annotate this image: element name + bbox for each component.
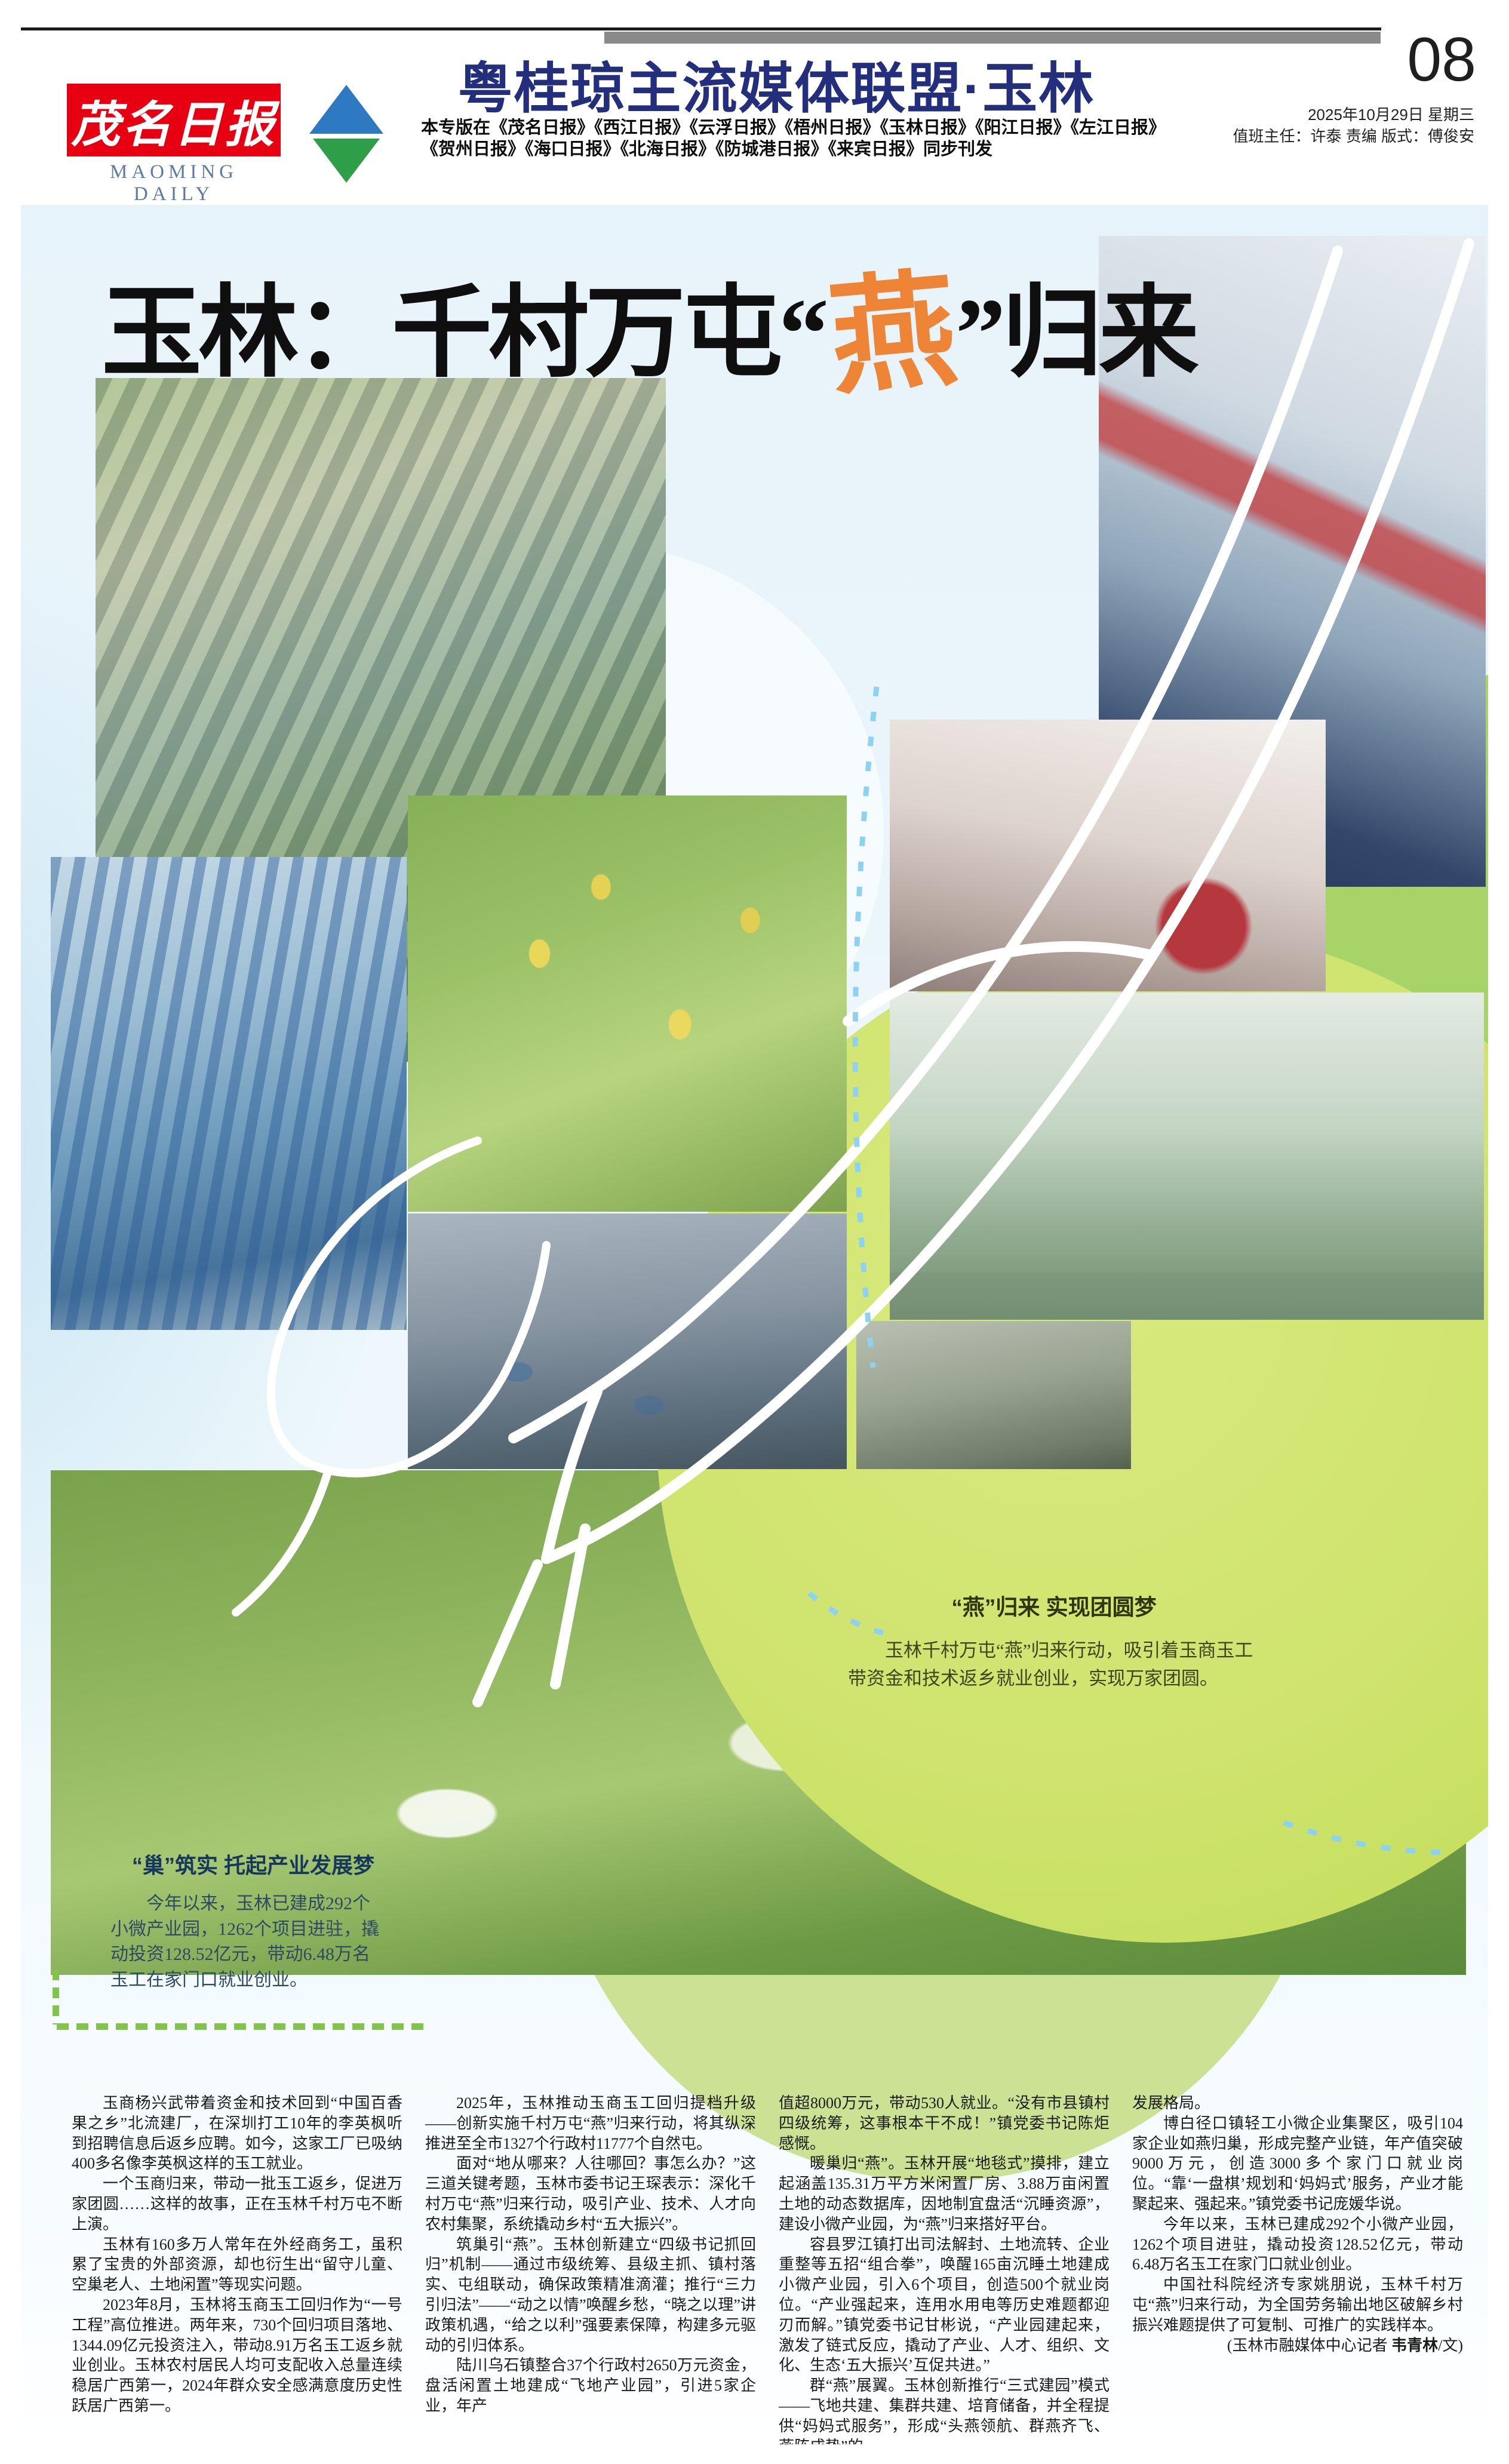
article-paragraph: 一个玉商归来，带动一批玉工返乡，促进万家团圆……这样的故事，正在玉林千村万屯不断… (72, 2174, 402, 2234)
article-column-2: 2025年，玉林推动玉商玉工回归提档升级——创新实施千村万屯“燕”归来行动，将其… (425, 2093, 756, 2444)
emblem-green-triangle-icon (313, 139, 380, 183)
headline: 玉林：千村万屯“燕”归来 (102, 262, 1105, 388)
page-title: 粤桂琼主流媒体联盟·玉林 (418, 44, 1135, 124)
byline-suffix: /文) (1438, 2337, 1463, 2354)
masthead-logo: 茂名日报 (67, 84, 281, 156)
article-paragraph: 2025年，玉林推动玉商玉工回归提档升级——创新实施千村万屯“燕”归来行动，将其… (425, 2093, 756, 2153)
byline: (玉林市融媒体中心记者 韦青林/文) (1132, 2336, 1463, 2356)
article-paragraph: 筑巢引“燕”。玉林创新建立“四级书记抓回归”机制——通过市级统筹、县级主抓、镇村… (425, 2235, 756, 2356)
emblem-blue-triangle-icon (309, 85, 383, 134)
green-dashed-line-horizontal (57, 2023, 427, 2030)
electronics-workshop-photo (890, 993, 1484, 1320)
masthead-logo-en: MAOMING DAILY (67, 161, 281, 205)
knitting-factory-photo (890, 720, 1326, 991)
date-line: 2025年10月29日 星期三 (1308, 103, 1474, 125)
couple-passionfruit-photo (408, 795, 847, 1212)
edition-note-line1: 本专版在《茂名日报》《西江日报》《云浮日报》《梧州日报》《玉林日报》《阳江日报》… (421, 117, 1269, 139)
article-paragraph: 发展格局。 (1132, 2093, 1463, 2113)
headline-suffix: ”归来 (955, 278, 1195, 389)
edition-note-line2: 《贺州日报》《海口日报》《北海日报》《防城港日报》《来宾日报》同步刊发 (421, 139, 1269, 160)
article-paragraph: 中国社科院经济专家姚朋说，玉林千村万屯“燕”归来行动，为全国劳务输出地区破解乡村… (1132, 2275, 1463, 2335)
article-column-4: 发展格局。 博白径口镇轻工小微企业集聚区，吸引104家企业如燕归巢，形成完整产业… (1132, 2093, 1463, 2444)
caption-swallow-title: “燕”归来 实现团圆梦 (848, 1589, 1260, 1621)
caption-nest-title: “巢”筑实 托起产业发展梦 (110, 1848, 385, 1879)
staff-line: 值班主任：许泰 责编 版式：傅俊安 (1233, 124, 1474, 146)
byline-prefix: (玉林市融媒体中心记者 (1227, 2337, 1391, 2354)
caption-swallow-body: 玉林千村万屯“燕”归来行动，吸引着玉商玉工带资金和技术返乡就业创业，实现万家团圆… (848, 1637, 1260, 1692)
caption-nest-building: “巢”筑实 托起产业发展梦 今年以来，玉林已建成292个小微产业园，1262个项… (110, 1848, 385, 1993)
header-gray-bar (604, 32, 1381, 44)
article-paragraph: 博白径口镇轻工小微企业集聚区，吸引104家企业如燕归巢，形成完整产业链，年产值突… (1132, 2113, 1463, 2214)
article-paragraph: 容县罗江镇打出司法解封、土地流转、企业重整等五招“组合拳”，唤醒165亩沉睡土地… (779, 2235, 1110, 2376)
article-column-3: 值超8000万元，带动530人就业。“没有市县镇村四级统筹，这事根本干不成！”镇… (779, 2093, 1110, 2444)
article-paragraph: 群“燕”展翼。玉林创新推行“三式建园”模式——飞地共建、集群共建、培育储备，并全… (779, 2376, 1110, 2444)
edition-note: 本专版在《茂名日报》《西江日报》《云浮日报》《梧州日报》《玉林日报》《阳江日报》… (421, 117, 1269, 161)
food-processing-photo (408, 1213, 847, 1469)
masthead-logo-text: 茂名日报 (71, 85, 276, 156)
article-paragraph: 面对“地从哪来？人往哪回？事怎么办？”这三道关键考题，玉林市委书记王琛表示：深化… (425, 2153, 756, 2234)
masthead-emblem-icon (309, 85, 383, 174)
article-paragraph: 玉商杨兴武带着资金和技术回到“中国百香果之乡”北流建厂，在深圳打工10年的李英枫… (72, 2093, 402, 2174)
article-paragraph: 玉林有160多万人常年在外经商务工，虽积累了宝贵的外部资源，却也衍生出“留守儿童… (72, 2235, 402, 2295)
article-paragraph: 今年以来，玉林已建成292个小微产业园，1262个项目进驻，撬动投资128.52… (1132, 2214, 1463, 2275)
article-paragraph: 陆川乌石镇整合37个行政村2650万元资金，盘活闲置土地建成“飞地产业园”，引进… (425, 2355, 756, 2416)
green-dashed-line-vertical (53, 1970, 59, 2024)
caption-swallow-return: “燕”归来 实现团圆梦 玉林千村万屯“燕”归来行动，吸引着玉商玉工带资金和技术返… (848, 1589, 1260, 1692)
article-paragraph: 值超8000万元，带动530人就业。“没有市县镇村四级统筹，这事根本干不成！”镇… (779, 2093, 1110, 2153)
headline-prefix: 玉林：千村万屯“ (102, 278, 825, 389)
content-area: 玉林：千村万屯“燕”归来 (21, 205, 1488, 2444)
page-number: 08 (1407, 29, 1476, 91)
newspaper-page: 茂名日报 MAOMING DAILY 粤桂琼主流媒体联盟·玉林 本专版在《茂名日… (0, 0, 1509, 2464)
article-paragraph: 暖巢归“燕”。玉林开展“地毯式”摸排，建立起涵盖135.31万平方米闲置厂房、3… (779, 2153, 1110, 2234)
caption-nest-body: 今年以来，玉林已建成292个小微产业园，1262个项目进驻，撬动投资128.52… (110, 1891, 385, 1993)
machine-operator-photo (856, 1321, 1131, 1469)
article-paragraph: 2023年8月，玉林将玉商玉工回归作为“一号工程”高位推进。两年来，730个回归… (72, 2295, 402, 2416)
headline-accent-swallow: 燕 (825, 267, 958, 404)
article-body: 玉商杨兴武带着资金和技术回到“中国百香果之乡”北流建厂，在深圳打工10年的李英枫… (72, 2093, 1463, 2444)
article-column-1: 玉商杨兴武带着资金和技术回到“中国百香果之乡”北流建厂，在深圳打工10年的李英枫… (72, 2093, 402, 2444)
blue-roof-factories-aerial-photo (51, 857, 407, 1330)
byline-name: 韦青林 (1391, 2336, 1438, 2354)
header-rule (21, 27, 1381, 30)
